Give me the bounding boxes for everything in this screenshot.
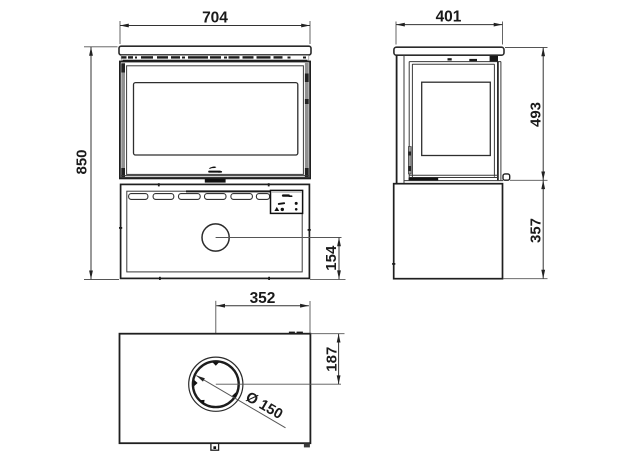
svg-text:704: 704 <box>202 10 228 27</box>
svg-text:401: 401 <box>436 9 462 26</box>
svg-text:352: 352 <box>250 290 276 307</box>
svg-text:850: 850 <box>74 149 91 174</box>
svg-text:493: 493 <box>528 102 545 127</box>
svg-text:154: 154 <box>323 245 340 271</box>
svg-text:357: 357 <box>528 218 545 243</box>
svg-text:187: 187 <box>324 347 341 372</box>
